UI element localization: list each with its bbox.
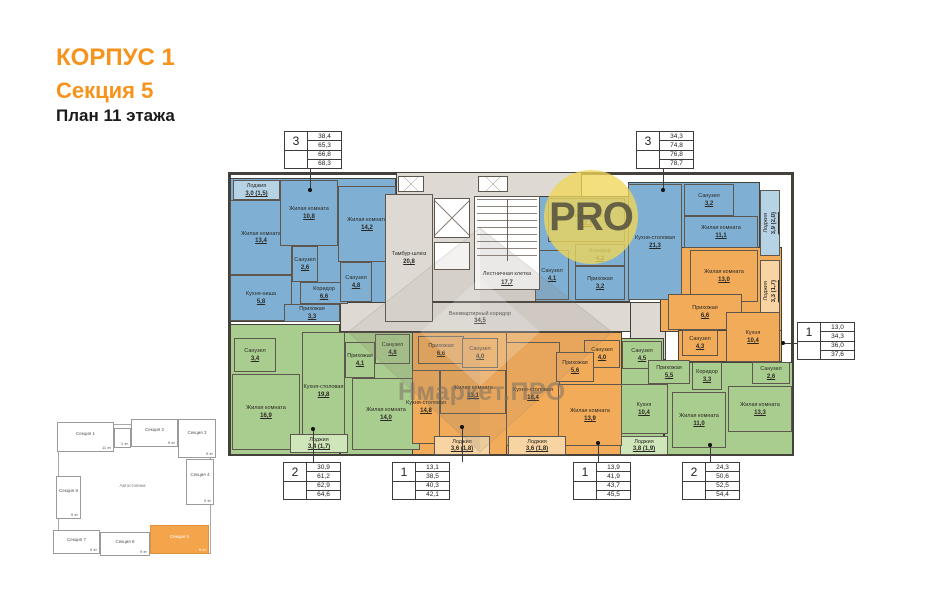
room-area: 14,2 (361, 225, 373, 231)
area-value: 34,3 (660, 132, 693, 141)
room-loggia: Лоджия3,0 (1,5) (233, 180, 280, 200)
room-area: 20,8 (403, 259, 415, 265)
minimap-section-floors: 9 эт (199, 547, 206, 552)
room-name: Лоджия (634, 439, 654, 446)
room-name: Санузел (244, 348, 265, 355)
room-bathroom: Санузел2,6 (292, 246, 318, 282)
room-name: Санузел (469, 346, 490, 353)
minimap-section-floors: 9 эт (204, 498, 211, 503)
elevator-shaft-icon (398, 176, 424, 192)
room-name: Тамбур-шлюз (392, 251, 427, 258)
room-area: 2,6 (301, 265, 309, 271)
minimap-section-2[interactable]: Секция 29 эт (131, 419, 178, 447)
minimap-section-5[interactable]: Секция 59 эт (150, 525, 209, 554)
room-name: Прихожая (587, 276, 613, 283)
minimap-section-link[interactable]: 1 эт (114, 428, 131, 448)
leader-dot (661, 188, 665, 192)
minimap-section-floors: 1 эт (121, 441, 128, 446)
leader-line (783, 343, 797, 344)
room-name: Кухня-ниша (246, 291, 276, 298)
room-corridor: Коридор3,3 (692, 362, 722, 390)
spec-table: 338,465,366,868,3 (284, 131, 342, 169)
room-name: Прихожая (428, 343, 454, 350)
room-area: 3,9 (2,0) (771, 212, 777, 234)
room-area: 3,8 (1,9) (633, 446, 655, 452)
minimap-section-label: Секция 7 (54, 537, 99, 542)
room-bathroom: Санузел3,2 (684, 184, 734, 216)
room-name: Жилая комната (246, 405, 286, 412)
minimap-section-floors: 9 эт (168, 440, 175, 445)
spec-table: 334,374,876,878,7 (636, 131, 694, 169)
room-area: 11,0 (693, 421, 704, 427)
room-area: 4,3 (696, 344, 704, 350)
room-name: Прихожая (656, 365, 682, 372)
room-kitchen: Кухня-столовая21,3 (628, 184, 682, 300)
room-name: Жилая комната (704, 269, 744, 276)
rooms-count-value: 3 (285, 132, 307, 151)
minimap-section-label: Секция 8 (57, 488, 80, 493)
stairwell-label: Лестничная клетка (475, 271, 539, 277)
room-name: Жилая комната (241, 231, 281, 238)
spec-table: 113,034,336,037,6 (797, 322, 855, 360)
room-bathroom: Санузел3,4 (234, 338, 276, 372)
spec-table-areas: 30,961,262,964,6 (307, 463, 340, 499)
elevator-shaft-icon (434, 198, 470, 238)
room-bathroom: Санузел4,1 (535, 250, 569, 300)
room-name: Жилая комната (366, 407, 406, 414)
spec-table-rooms-count: 2 (284, 463, 307, 499)
room-area: 14,8 (420, 408, 432, 414)
room-name: Санузел (760, 366, 781, 373)
minimap-section-floors: 9 эт (140, 549, 147, 554)
room-hall: Прихожая5,5 (648, 360, 690, 384)
page-title-section: Секция 5 (56, 78, 153, 104)
stairwell: Лестничная клетка 17,7 (474, 196, 540, 290)
area-value: 74,8 (660, 141, 693, 150)
page-title-building: КОРПУС 1 (56, 44, 175, 72)
area-value: 37,6 (821, 351, 854, 359)
room-name: Санузел (541, 268, 562, 275)
rooms-count-value: 3 (637, 132, 659, 151)
room-hall: Прихожая4,1 (345, 342, 375, 378)
room-area: 16,9 (260, 413, 272, 419)
room-area: 3,2 (705, 201, 713, 207)
spec-table-areas: 38,465,366,868,3 (308, 132, 341, 168)
rooms-count-value: 1 (798, 323, 820, 342)
spec-table-rooms-count: 3 (285, 132, 308, 168)
room-kitchen: Кухня10,4 (726, 312, 780, 362)
room-hall: Прихожая3,3 (284, 304, 340, 322)
leader-dot (781, 341, 785, 345)
leader-dot (460, 425, 464, 429)
minimap-parking-label: Автостоянка (105, 483, 160, 488)
area-value: 41,9 (597, 472, 630, 481)
room-area: 14,0 (380, 415, 392, 421)
spec-table: 230,961,262,964,6 (283, 462, 341, 500)
room-area: 6,6 (437, 351, 445, 357)
room-hall: Прихожая3,2 (575, 266, 625, 300)
room-name: Санузел (689, 336, 710, 343)
room-area: 4,0 (476, 354, 484, 360)
room-living: Жилая комната11,1 (684, 216, 758, 248)
spec-table-areas: 24,350,652,554,4 (706, 463, 739, 499)
room-name: Жилая комната (679, 413, 719, 420)
area-value: 50,6 (706, 472, 739, 481)
rooms-count-value: 2 (683, 463, 705, 482)
brand-watermark: Нмаркет.ПРО (398, 378, 566, 407)
area-value: 78,7 (660, 160, 693, 168)
room-area: 4,8 (352, 283, 360, 289)
minimap-section-floors: 9 эт (206, 451, 213, 456)
room-name: Лоджия (763, 281, 770, 301)
room-bathroom: Санузел4,0 (462, 338, 498, 368)
room-name: Жилая комната (289, 206, 329, 213)
spec-table: 224,350,652,554,4 (682, 462, 740, 500)
room-area: 4,5 (638, 356, 646, 362)
service-shaft (434, 242, 470, 270)
minimap-section-label: Секция 6 (101, 539, 149, 544)
room-name: Жилая комната (570, 408, 610, 415)
spec-table-areas: 13,138,540,342,1 (416, 463, 449, 499)
room-area: 3,3 (1,7) (771, 280, 777, 302)
room-kitchen: Кухня10,4 (620, 384, 668, 434)
room-loggia: Лоджия3,8 (1,9) (620, 436, 668, 455)
area-value: 13,9 (597, 463, 630, 472)
spec-table-rooms-count: 1 (574, 463, 597, 499)
room-area: 4,0 (598, 355, 606, 361)
area-value: 52,5 (706, 482, 739, 491)
room-area: 13,4 (255, 238, 267, 244)
spec-table-rooms-count: 1 (798, 323, 821, 359)
area-value: 43,7 (597, 482, 630, 491)
room-bathroom: Санузел2,6 (752, 362, 790, 384)
room-name: Санузел (698, 193, 719, 200)
minimap-section-floors: 9 эт (71, 512, 78, 517)
minimap-section-floors: 9 эт (90, 547, 97, 552)
spec-table-areas: 13,941,943,745,5 (597, 463, 630, 499)
room-name: Прихожая (692, 305, 718, 312)
area-value: 54,4 (706, 491, 739, 499)
room-name: Прихожая (347, 353, 373, 360)
area-value: 42,1 (416, 491, 449, 499)
area-value: 61,2 (307, 472, 340, 481)
leader-dot (708, 443, 712, 447)
leader-dot (596, 441, 600, 445)
minimap-section-6[interactable]: Секция 69 эт (100, 532, 150, 556)
room-area: 19,8 (318, 392, 330, 398)
area-value: 40,3 (416, 482, 449, 491)
area-value: 66,8 (308, 151, 341, 160)
room-area: 3,6 (1,8) (526, 446, 548, 452)
area-value: 45,5 (597, 491, 630, 499)
room-name: Лоджия (527, 439, 547, 446)
spec-table: 113,138,540,342,1 (392, 462, 450, 500)
room-area: 6,6 (320, 294, 328, 300)
room-area: 3,4 (1,7) (308, 444, 330, 450)
room-name: Жилая комната (347, 217, 387, 224)
room-name: Санузел (591, 347, 612, 354)
room-area: 13,0 (718, 277, 730, 283)
room-kitchen: Кухня-ниша5,8 (230, 275, 292, 321)
room-area: 3,3 (703, 377, 711, 383)
room-area: 5,8 (257, 299, 265, 305)
room-area: 10,4 (638, 410, 650, 416)
area-value: 36,0 (821, 342, 854, 351)
room-name: Коридор (696, 369, 718, 376)
room-area: 4,8 (388, 350, 396, 356)
room-name: Лоджия (763, 213, 770, 233)
room-loggia: Лоджия3,9 (2,0) (760, 190, 780, 256)
leader-dot (308, 188, 312, 192)
stairwell-area: 17,7 (475, 280, 539, 286)
minimap-section-4[interactable]: Секция 49 эт (186, 459, 214, 505)
room-name: Кухня (637, 402, 652, 409)
room-area: 2,6 (767, 374, 775, 380)
room-name: Санузел (631, 348, 652, 355)
area-value: 64,6 (307, 491, 340, 499)
room-area: 4,1 (548, 276, 556, 282)
room-name: Кухня-столовая (304, 384, 344, 391)
room-bathroom: Санузел4,8 (340, 262, 372, 302)
area-value: 38,5 (416, 472, 449, 481)
elevator-shaft-icon (478, 176, 508, 192)
rooms-count-value: 1 (393, 463, 415, 482)
leader-line (462, 428, 463, 462)
minimap-section-label: Секция 3 (179, 430, 215, 435)
room-area: 34,5 (474, 318, 486, 324)
leader-line (313, 430, 314, 462)
spec-table-areas: 13,034,336,037,6 (821, 323, 854, 359)
room-bathroom: Санузел4,3 (682, 330, 718, 356)
room-area: 6,6 (701, 313, 709, 319)
room-area: 11,1 (715, 233, 726, 239)
room-name: Внеквартирный коридор (449, 311, 511, 318)
area-value: 30,9 (307, 463, 340, 472)
room-area: 5,5 (665, 373, 673, 379)
room-tambour: Тамбур-шлюз20,8 (385, 194, 433, 322)
room-living: Жилая комната13,3 (728, 386, 792, 432)
leader-line (710, 446, 711, 462)
minimap-section-8[interactable]: Секция 89 эт (56, 476, 81, 519)
room-area: 10,4 (747, 338, 759, 344)
rooms-count-value: 2 (284, 463, 306, 482)
leader-dot (311, 427, 315, 431)
room-name: Коридор (313, 286, 335, 293)
spec-table-rooms-count: 2 (683, 463, 706, 499)
room-kitchen: Кухня-столовая19,8 (302, 332, 345, 450)
page-title-plan: План 11 этажа (56, 106, 175, 126)
room-name: Жилая комната (701, 225, 741, 232)
minimap-section-3[interactable]: Секция 39 эт (178, 419, 216, 458)
room-area: 13,9 (584, 416, 596, 422)
area-value: 68,3 (308, 160, 341, 168)
room-name: Жилая комната (740, 402, 780, 409)
minimap-section-label: Секция 5 (151, 534, 208, 539)
room-name: Санузел (345, 275, 366, 282)
spec-table-rooms-count: 3 (637, 132, 660, 168)
area-value: 38,4 (308, 132, 341, 141)
room-area: 4,1 (356, 361, 364, 367)
room-area: 3,2 (596, 284, 604, 290)
pro-logo-watermark: PRO (544, 170, 638, 264)
room-name: Лоджия (247, 183, 267, 190)
room-living: Жилая комната13,9 (558, 384, 622, 446)
leader-line (598, 444, 599, 462)
room-area: 5,6 (571, 368, 579, 374)
area-value: 62,9 (307, 482, 340, 491)
spec-table-rooms-count: 1 (393, 463, 416, 499)
floorplan-page: КОРПУС 1 Секция 5 План 11 этажа Лоджия3,… (0, 0, 941, 600)
room-area: 3,4 (251, 356, 259, 362)
room-area: 3,0 (1,5) (245, 191, 267, 197)
room-area: 10,8 (303, 214, 315, 220)
room-hall: Прихожая6,6 (418, 336, 464, 364)
room-area: 21,3 (649, 243, 661, 249)
area-value: 65,3 (308, 141, 341, 150)
spec-table-areas: 34,374,876,878,7 (660, 132, 693, 168)
room-name: Кухня-столовая (635, 235, 675, 242)
room-name: Санузел (382, 342, 403, 349)
room-name: Кухня (746, 330, 761, 337)
room-living: Жилая комната11,0 (672, 392, 726, 448)
minimap-section-label: Секция 4 (187, 472, 213, 477)
room-bathroom: Санузел4,8 (375, 334, 410, 364)
area-value: 34,3 (821, 332, 854, 341)
minimap-section-label: Секция 1 (58, 431, 113, 436)
room-area: 3,3 (308, 314, 316, 320)
stair-treads-icon (477, 199, 537, 261)
room-area: 13,3 (754, 410, 766, 416)
room-name: Прихожая (562, 360, 588, 367)
room-loggia: Лоджия3,4 (1,7) (290, 434, 348, 453)
spec-table: 113,941,943,745,5 (573, 462, 631, 500)
pro-logo-text: PRO (549, 195, 633, 240)
room-name: Санузел (294, 257, 315, 264)
minimap-section-7[interactable]: Секция 79 эт (53, 530, 100, 554)
area-value: 24,3 (706, 463, 739, 472)
area-value: 13,1 (416, 463, 449, 472)
room-name: Прихожая (299, 306, 325, 313)
minimap-section-label: Секция 2 (132, 427, 177, 432)
minimap-section-1[interactable]: Секция 111 эт (57, 422, 114, 452)
area-value: 76,8 (660, 151, 693, 160)
area-value: 13,0 (821, 323, 854, 332)
room-common-corridor: Внеквартирный коридор34,5 (420, 304, 540, 331)
room-loggia: Лоджия3,6 (1,8) (508, 436, 566, 455)
minimap-section-floors: 11 эт (102, 445, 111, 450)
rooms-count-value: 1 (574, 463, 596, 482)
